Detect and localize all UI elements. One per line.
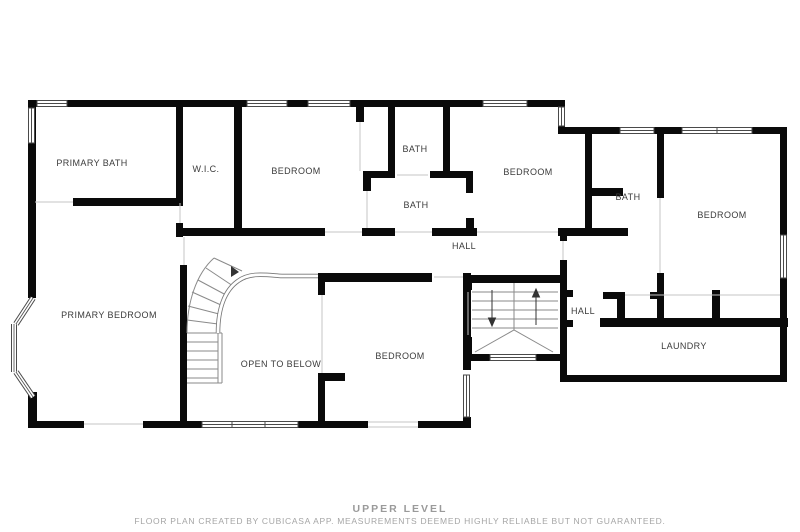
room-label-bath-middle: BATH	[404, 200, 429, 210]
room-label-open-to-below: OPEN TO BELOW	[241, 359, 321, 369]
room-label-bedroom-bottom: BEDROOM	[375, 351, 424, 361]
room-label-hall-upper: HALL	[452, 241, 476, 251]
room-label-bath-right: BATH	[616, 192, 641, 202]
bay-window	[14, 298, 33, 397]
floor-plan-svg	[0, 0, 800, 532]
room-label-bedroom-top-left: BEDROOM	[271, 166, 320, 176]
stair-down-arrow-icon	[489, 290, 496, 326]
floor-plan-page: PRIMARY BATHW.I.C.BEDROOMBATHBATHBEDROOM…	[0, 0, 800, 532]
room-label-bath-top: BATH	[403, 144, 428, 154]
room-label-primary-bath: PRIMARY BATH	[56, 158, 127, 168]
room-label-bedroom-right: BEDROOM	[697, 210, 746, 220]
room-label-primary-bedroom: PRIMARY BEDROOM	[61, 310, 157, 320]
room-label-hall-right: HALL	[571, 306, 595, 316]
disclaimer-text: FLOOR PLAN CREATED BY CUBICASA APP. MEAS…	[0, 516, 800, 526]
level-title: UPPER LEVEL	[0, 503, 800, 515]
room-label-wic: W.I.C.	[193, 164, 220, 174]
room-label-laundry: LAUNDRY	[661, 341, 707, 351]
stair-up-arrow-icon	[533, 289, 540, 325]
staircase-straight	[472, 283, 558, 352]
room-label-bedroom-top-center: BEDROOM	[503, 167, 552, 177]
